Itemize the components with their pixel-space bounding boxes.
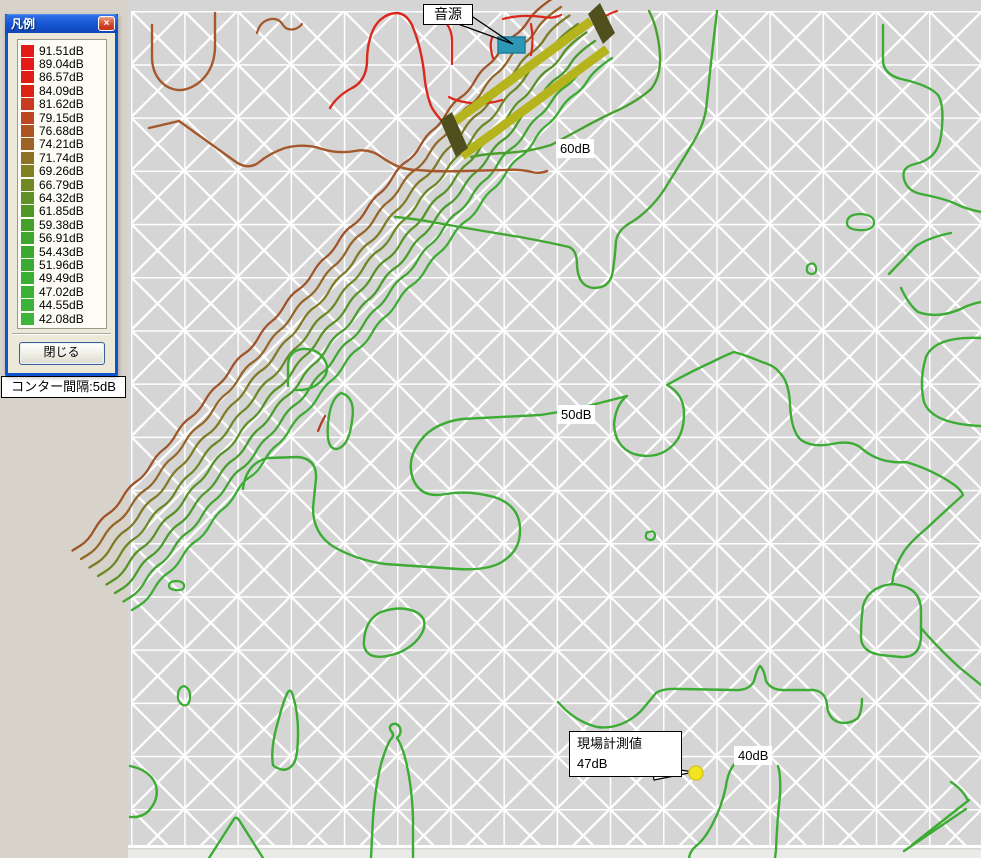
legend-item[interactable]: 66.79dB bbox=[21, 178, 104, 191]
legend-item-label: 74.21dB bbox=[39, 137, 84, 151]
legend-item[interactable]: 47.02dB bbox=[21, 285, 104, 298]
legend-item-label: 69.26dB bbox=[39, 164, 84, 178]
legend-color-swatch bbox=[21, 152, 34, 164]
legend-item-label: 76.68dB bbox=[39, 124, 84, 138]
contour-interval-label: コンター間隔:5dB bbox=[1, 376, 126, 398]
legend-color-swatch bbox=[21, 125, 34, 137]
legend-item[interactable]: 69.26dB bbox=[21, 165, 104, 178]
legend-item[interactable]: 64.32dB bbox=[21, 191, 104, 204]
map-canvas[interactable] bbox=[0, 0, 981, 858]
legend-item[interactable]: 61.85dB bbox=[21, 205, 104, 218]
legend-color-swatch bbox=[21, 179, 34, 191]
legend-item[interactable]: 56.91dB bbox=[21, 231, 104, 244]
legend-item-label: 84.09dB bbox=[39, 84, 84, 98]
legend-color-swatch bbox=[21, 232, 34, 244]
legend-item-label: 71.74dB bbox=[39, 151, 84, 165]
legend-item-label: 79.15dB bbox=[39, 111, 84, 125]
legend-titlebar[interactable]: 凡例 × bbox=[5, 14, 118, 33]
contour-label-60db: 60dB bbox=[556, 139, 594, 158]
legend-item[interactable]: 76.68dB bbox=[21, 124, 104, 137]
legend-color-swatch bbox=[21, 259, 34, 271]
close-button[interactable]: 閉じる bbox=[19, 342, 105, 365]
legend-item-label: 66.79dB bbox=[39, 178, 84, 192]
measurement-callout-line2: 47dB bbox=[577, 754, 681, 774]
legend-color-swatch bbox=[21, 45, 34, 57]
legend-item[interactable]: 49.49dB bbox=[21, 272, 104, 285]
measurement-callout: 現場計測値 47dB bbox=[569, 731, 682, 777]
legend-item[interactable]: 89.04dB bbox=[21, 57, 104, 70]
contour-label-40db: 40dB bbox=[734, 746, 772, 765]
legend-item-label: 91.51dB bbox=[39, 44, 84, 58]
legend-color-swatch bbox=[21, 165, 34, 177]
legend-item[interactable]: 81.62dB bbox=[21, 98, 104, 111]
measurement-point-marker[interactable] bbox=[689, 766, 703, 780]
legend-color-swatch bbox=[21, 98, 34, 110]
legend-item[interactable]: 84.09dB bbox=[21, 84, 104, 97]
legend-color-swatch bbox=[21, 58, 34, 70]
contour-label-50db: 50dB bbox=[557, 405, 595, 424]
legend-item[interactable]: 59.38dB bbox=[21, 218, 104, 231]
legend-window: 凡例 × 91.51dB89.04dB86.57dB84.09dB81.62dB… bbox=[5, 14, 118, 376]
legend-item[interactable]: 42.08dB bbox=[21, 312, 104, 325]
legend-item[interactable]: 79.15dB bbox=[21, 111, 104, 124]
legend-item[interactable]: 74.21dB bbox=[21, 138, 104, 151]
legend-color-swatch bbox=[21, 192, 34, 204]
legend-color-swatch bbox=[21, 71, 34, 83]
legend-item[interactable]: 44.55dB bbox=[21, 298, 104, 311]
legend-item-label: 56.91dB bbox=[39, 231, 84, 245]
legend-item-label: 49.49dB bbox=[39, 271, 84, 285]
bottom-strip bbox=[128, 850, 981, 858]
legend-item[interactable]: 54.43dB bbox=[21, 245, 104, 258]
legend-color-swatch bbox=[21, 138, 34, 150]
legend-item-label: 81.62dB bbox=[39, 97, 84, 111]
legend-item-label: 59.38dB bbox=[39, 218, 84, 232]
source-label: 音源 bbox=[423, 4, 473, 25]
legend-item-label: 42.08dB bbox=[39, 312, 84, 326]
measurement-callout-line1: 現場計測値 bbox=[577, 734, 681, 754]
legend-color-swatch bbox=[21, 272, 34, 284]
legend-color-swatch bbox=[21, 219, 34, 231]
legend-item[interactable]: 71.74dB bbox=[21, 151, 104, 164]
legend-item-label: 86.57dB bbox=[39, 70, 84, 84]
legend-color-swatch bbox=[21, 112, 34, 124]
legend-item-label: 51.96dB bbox=[39, 258, 84, 272]
app-root: { "legend": { "title": "凡例", "close_icon… bbox=[0, 0, 981, 858]
legend-separator bbox=[12, 333, 111, 335]
legend-color-swatch bbox=[21, 246, 34, 258]
legend-item-label: 89.04dB bbox=[39, 57, 84, 71]
legend-color-swatch bbox=[21, 299, 34, 311]
legend-list: 91.51dB89.04dB86.57dB84.09dB81.62dB79.15… bbox=[17, 39, 107, 329]
close-icon[interactable]: × bbox=[98, 16, 115, 31]
legend-item-label: 54.43dB bbox=[39, 245, 84, 259]
legend-item-label: 47.02dB bbox=[39, 285, 84, 299]
legend-item-label: 64.32dB bbox=[39, 191, 84, 205]
legend-item[interactable]: 51.96dB bbox=[21, 258, 104, 271]
legend-color-swatch bbox=[21, 205, 34, 217]
legend-window-title: 凡例 bbox=[5, 15, 35, 32]
legend-color-swatch bbox=[21, 286, 34, 298]
legend-item[interactable]: 91.51dB bbox=[21, 44, 104, 57]
legend-item-label: 44.55dB bbox=[39, 298, 84, 312]
legend-color-swatch bbox=[21, 313, 34, 325]
legend-item[interactable]: 86.57dB bbox=[21, 71, 104, 84]
legend-item-label: 61.85dB bbox=[39, 204, 84, 218]
legend-color-swatch bbox=[21, 85, 34, 97]
